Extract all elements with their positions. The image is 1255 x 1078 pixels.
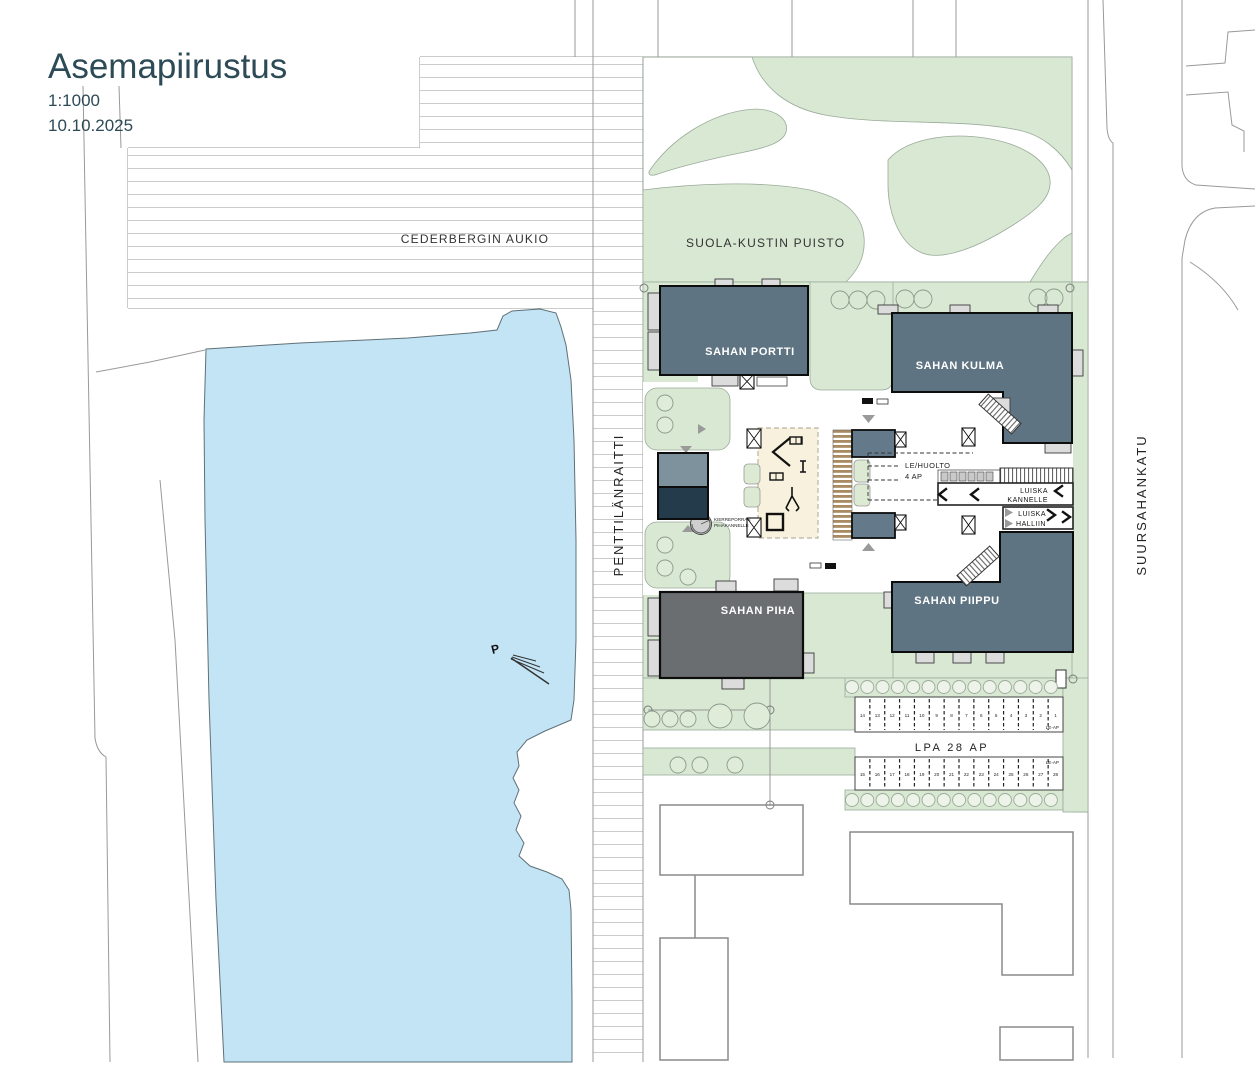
stall-number: 26 (1023, 772, 1029, 777)
site-plan-svg: CEDERBERGIN AUKIO PENTTILÄNRAITTI P SUOL… (0, 0, 1255, 1078)
stall-number: 17 (890, 772, 896, 777)
aukio-label: CEDERBERGIN AUKIO (401, 232, 549, 246)
stall-number: 12 (890, 713, 896, 718)
stall-number: 27 (1038, 772, 1044, 777)
stall-number: 7 (965, 713, 968, 718)
stall-number: 11 (905, 713, 910, 718)
building-sahan-piha: SAHAN PIHA (648, 579, 814, 689)
le-ap-row2: LE-AP (1046, 760, 1059, 765)
stall-number: 15 (860, 772, 866, 777)
stall-number: 1 (1054, 713, 1057, 718)
building-sahan-portti: SAHAN PORTTI (648, 279, 808, 389)
ramp-deck: LUISKA KANNELLE (938, 483, 1073, 505)
wood-deck (833, 430, 852, 540)
street-suursahankatu: SUURSAHANKATU (1134, 434, 1149, 575)
ramp-hall-line1: LUISKA (1018, 511, 1046, 518)
stall-number: 25 (1008, 772, 1014, 777)
label-sahan-piha: SAHAN PIHA (721, 605, 795, 617)
stall-number: 24 (994, 772, 1000, 777)
le-ap-row1: LE-AP (1046, 725, 1059, 730)
ramp-deck-line2: KANNELLE (1007, 497, 1048, 504)
stall-number: 9 (935, 713, 938, 718)
water-body: P (204, 309, 576, 1062)
ramp-deck-line1: LUISKA (1020, 488, 1048, 495)
ramp-hall: LUISKA HALLIIN (1003, 507, 1073, 529)
stall-number: 21 (949, 772, 955, 777)
street-east-label: SUURSAHANKATU (1134, 434, 1149, 575)
service-label-line1: LE/HUOLTO (905, 461, 950, 470)
stall-number: 19 (919, 772, 925, 777)
play-area (758, 428, 818, 538)
label-sahan-piippu: SAHAN PIIPPU (914, 595, 999, 607)
parking-label: LPA 28 AP (915, 742, 989, 754)
stall-number: 5 (995, 713, 998, 718)
drawing-scale: 1:1000 (48, 91, 100, 110)
drawing-title: Asemapiirustus (48, 47, 287, 86)
stall-number: 22 (964, 772, 970, 777)
label-sahan-kulma: SAHAN KULMA (916, 360, 1004, 372)
drawing-date: 10.10.2025 (48, 116, 133, 135)
label-sahan-portti: SAHAN PORTTI (705, 346, 795, 358)
stall-number: 8 (950, 713, 953, 718)
stall-number: 13 (875, 713, 881, 718)
stall-number: 6 (980, 713, 983, 718)
ramp-hall-line2: HALLIIN (1016, 521, 1046, 528)
stall-number: 16 (875, 772, 881, 777)
site-plan-canvas: CEDERBERGIN AUKIO PENTTILÄNRAITTI P SUOL… (0, 0, 1255, 1078)
spiral-label-line1: KIERREPORRAS (714, 517, 751, 522)
stall-number: 20 (934, 772, 940, 777)
park-suola-kustin: SUOLA-KUSTIN PUISTO (643, 57, 1072, 282)
stall-number: 18 (904, 772, 910, 777)
stall-number: 4 (1010, 713, 1013, 718)
stall-number: 28 (1053, 772, 1059, 777)
spiral-label-line2: PIHAKANNELLE (714, 523, 749, 528)
park-label: SUOLA-KUSTIN PUISTO (686, 236, 845, 250)
stall-number: 2 (1039, 713, 1042, 718)
service-label-line2: 4 AP (905, 472, 922, 481)
street-penttilanraitti: PENTTILÄNRAITTI (593, 0, 643, 1062)
stall-number: 23 (979, 772, 985, 777)
street-west-label: PENTTILÄNRAITTI (611, 434, 626, 577)
stall-number: 3 (1025, 713, 1028, 718)
building-deck-access (658, 453, 708, 519)
stall-number: 14 (860, 713, 866, 718)
storage-building-south (852, 513, 895, 538)
stall-number: 10 (919, 713, 925, 718)
